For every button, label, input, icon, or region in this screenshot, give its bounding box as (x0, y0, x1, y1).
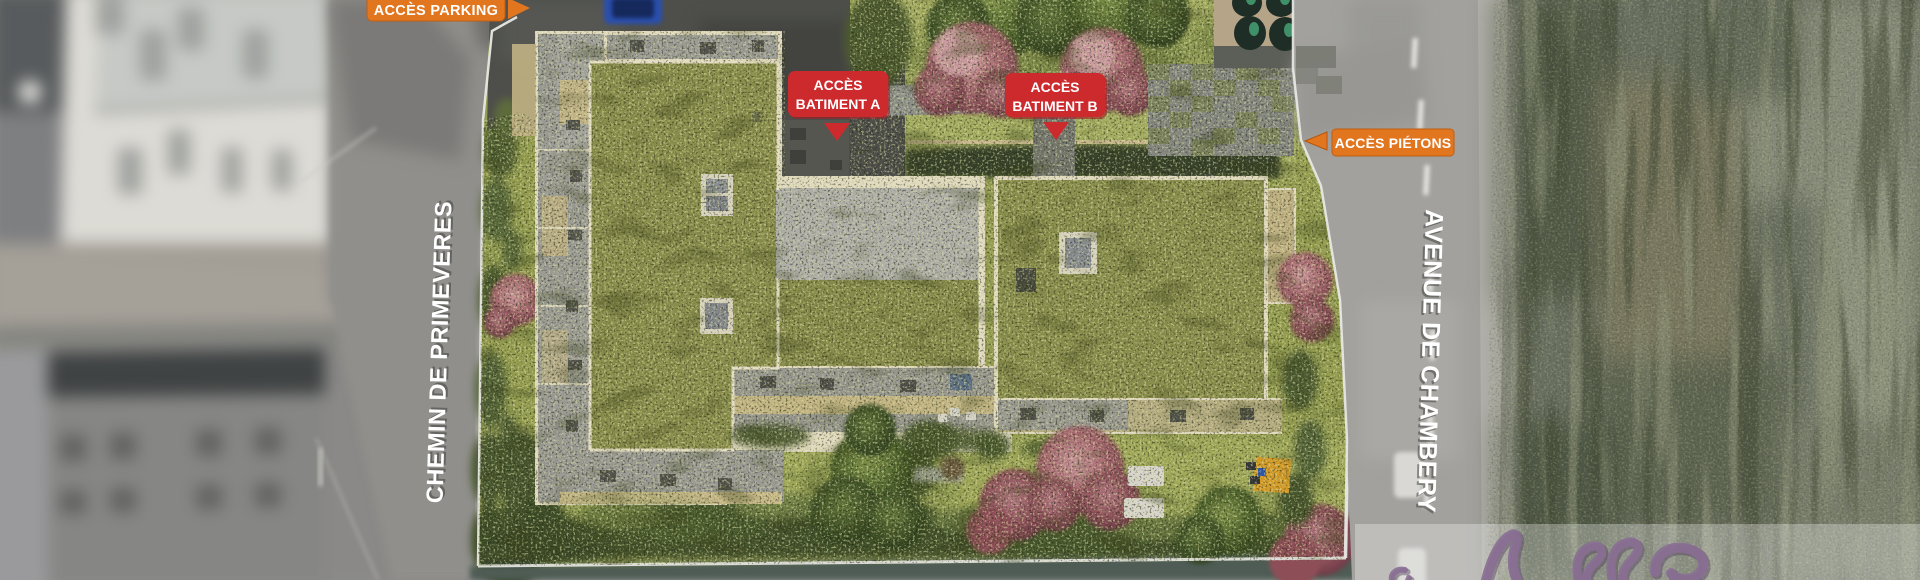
svg-text:BATIMENT B: BATIMENT B (1012, 98, 1097, 114)
svg-text:ACCÈS: ACCÈS (813, 77, 862, 93)
svg-text:ACCÈS PARKING: ACCÈS PARKING (374, 2, 498, 19)
svg-text:ACCÈS: ACCÈS (1030, 79, 1079, 95)
svg-text:BATIMENT A: BATIMENT A (796, 96, 881, 112)
svg-text:ACCÈS PIÉTONS: ACCÈS PIÉTONS (1335, 135, 1452, 151)
